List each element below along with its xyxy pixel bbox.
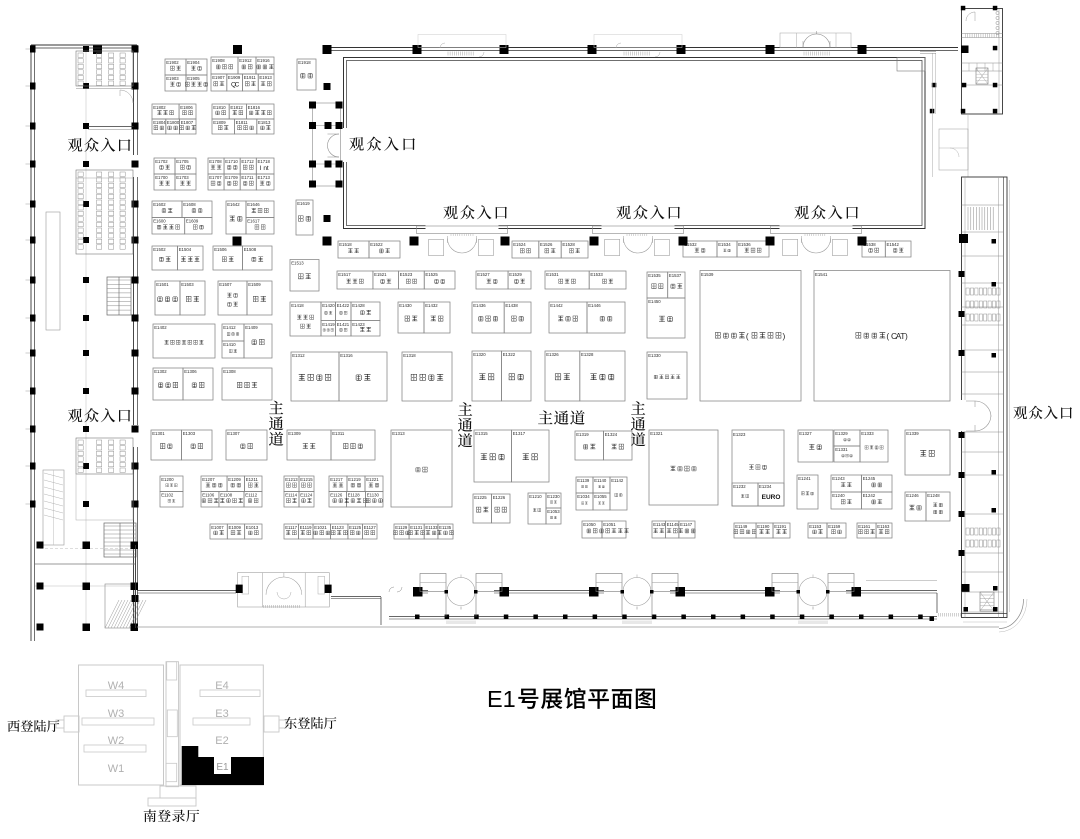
svg-text:E1149: E1149 [735, 524, 748, 529]
svg-text:E1525: E1525 [425, 272, 438, 277]
svg-text:E1813: E1813 [258, 120, 271, 125]
svg-text:E1217: E1217 [330, 477, 343, 482]
svg-text:E1225: E1225 [474, 495, 487, 500]
svg-text:E4: E4 [215, 680, 228, 692]
svg-text:E1324: E1324 [605, 432, 618, 437]
svg-text:E1646: E1646 [247, 202, 260, 207]
svg-text:E1534: E1534 [718, 242, 731, 247]
svg-text:E1147: E1147 [680, 522, 693, 527]
svg-text:E1501: E1501 [156, 282, 169, 287]
svg-text:E1119: E1119 [300, 525, 312, 530]
svg-text:E1319: E1319 [576, 432, 589, 437]
svg-text:E1713: E1713 [258, 175, 271, 180]
svg-text:E1124: E1124 [300, 493, 313, 498]
svg-text:E1133: E1133 [425, 525, 438, 530]
svg-text:E1537: E1537 [669, 273, 682, 278]
svg-text:E1135: E1135 [439, 525, 452, 530]
svg-text:E1600: E1600 [153, 219, 166, 224]
svg-text:E1328: E1328 [581, 352, 594, 357]
svg-text:E1140: E1140 [594, 478, 607, 483]
svg-text:E1126: E1126 [330, 493, 343, 498]
svg-text:E1053: E1053 [547, 509, 560, 514]
svg-text:E1303: E1303 [183, 431, 196, 436]
svg-text:E1051: E1051 [603, 522, 616, 527]
svg-text:E1242: E1242 [863, 493, 876, 498]
svg-text:E1326: E1326 [546, 352, 559, 357]
svg-text:E1506: E1506 [214, 247, 227, 252]
svg-text:E1410: E1410 [223, 342, 236, 347]
svg-text:E1246: E1246 [906, 493, 919, 498]
svg-text:E1129: E1129 [395, 525, 408, 530]
svg-text:E1200: E1200 [161, 477, 174, 482]
svg-text:E1508: E1508 [244, 247, 257, 252]
svg-text:(: ( [746, 331, 749, 341]
svg-text:E1535: E1535 [648, 273, 661, 278]
svg-text:E1211: E1211 [246, 477, 259, 482]
svg-text:E1331: E1331 [835, 447, 848, 452]
svg-text:E1139: E1139 [577, 478, 590, 483]
svg-text:E1114: E1114 [285, 493, 297, 498]
svg-text:E1526: E1526 [540, 242, 553, 247]
svg-text:E1909: E1909 [228, 75, 241, 80]
svg-text:C: C [235, 82, 240, 89]
svg-text:E1907: E1907 [212, 75, 225, 80]
svg-text:E1807: E1807 [181, 120, 194, 125]
svg-text:E1529: E1529 [509, 272, 522, 277]
svg-text:E1502: E1502 [153, 247, 166, 252]
svg-text:E1802: E1802 [153, 105, 166, 110]
svg-text:E1513: E1513 [291, 261, 304, 266]
svg-text:E1034: E1034 [577, 494, 590, 499]
svg-text:E1320: E1320 [473, 352, 486, 357]
svg-text:E1522: E1522 [370, 242, 383, 247]
svg-text:E1521: E1521 [374, 272, 387, 277]
svg-text:E1240: E1240 [832, 493, 845, 498]
svg-text:E1318: E1318 [403, 353, 416, 358]
svg-text:E1316: E1316 [340, 353, 353, 358]
svg-text:E1309: E1309 [288, 431, 301, 436]
svg-text:E1409: E1409 [245, 325, 258, 330]
svg-text:E1333: E1333 [861, 431, 874, 436]
svg-text:E1912: E1912 [239, 58, 252, 63]
svg-text:E1430: E1430 [399, 303, 412, 308]
svg-text:E1243: E1243 [832, 476, 845, 481]
svg-text:E1245: E1245 [863, 476, 876, 481]
svg-text:E1: E1 [216, 762, 229, 773]
svg-text:W1: W1 [108, 763, 125, 775]
svg-text:E1446: E1446 [588, 303, 601, 308]
svg-text:E1219: E1219 [348, 477, 361, 482]
svg-text:E1009: E1009 [229, 525, 242, 530]
svg-text:E1308: E1308 [223, 369, 236, 374]
svg-text:E1311: E1311 [332, 431, 345, 436]
svg-text:E1811: E1811 [236, 120, 249, 125]
svg-text:): ) [905, 331, 908, 341]
svg-text:E1428: E1428 [352, 303, 365, 308]
svg-text:E1142: E1142 [611, 478, 624, 483]
svg-text:E1307: E1307 [227, 431, 240, 436]
svg-text:E1816: E1816 [248, 105, 261, 110]
svg-text:E1108: E1108 [220, 493, 233, 498]
svg-text:E1210: E1210 [529, 494, 542, 499]
svg-text:E1301: E1301 [152, 431, 165, 436]
svg-text:E1707: E1707 [209, 175, 222, 180]
svg-text:E1: E1 [487, 686, 516, 712]
svg-text:E1442: E1442 [550, 303, 563, 308]
svg-text:E1812: E1812 [230, 105, 243, 110]
svg-text:E1021: E1021 [314, 525, 327, 530]
svg-text:E1112: E1112 [245, 493, 257, 498]
svg-text:E1528: E1528 [562, 242, 575, 247]
svg-text:E1918: E1918 [298, 60, 311, 65]
svg-text:E1117: E1117 [285, 525, 297, 530]
svg-text:E1905: E1905 [187, 76, 200, 81]
svg-text:E1904: E1904 [187, 60, 200, 65]
svg-text:E1313: E1313 [392, 431, 405, 436]
svg-text:E1810: E1810 [213, 105, 226, 110]
svg-text:E1902: E1902 [166, 60, 179, 65]
svg-text:E1050: E1050 [583, 522, 596, 527]
svg-text:E1207: E1207 [202, 477, 215, 482]
svg-text:E1128: E1128 [348, 493, 361, 498]
svg-text:E1102: E1102 [161, 493, 174, 498]
svg-text:E1420: E1420 [322, 303, 335, 308]
svg-text:E1438: E1438 [505, 303, 518, 308]
svg-text:E1541: E1541 [815, 272, 828, 277]
svg-text:E1503: E1503 [181, 282, 194, 287]
svg-text:E1531: E1531 [546, 272, 559, 277]
svg-text:E1619: E1619 [297, 201, 310, 206]
svg-text:E1191: E1191 [774, 524, 787, 529]
svg-text:E1806: E1806 [180, 105, 193, 110]
svg-text:E1125: E1125 [349, 525, 362, 530]
svg-text:E1536: E1536 [738, 242, 751, 247]
svg-text:E1234: E1234 [759, 484, 772, 489]
svg-text:E1705: E1705 [176, 159, 189, 164]
svg-text:E1418: E1418 [291, 303, 304, 308]
svg-text:E1327: E1327 [799, 431, 812, 436]
svg-text:E1302: E1302 [154, 369, 167, 374]
svg-text:E1908: E1908 [212, 58, 225, 63]
svg-text:I: I [260, 165, 262, 172]
svg-text:E1703: E1703 [176, 175, 189, 180]
svg-text:E1323: E1323 [733, 432, 746, 437]
svg-text:E1321: E1321 [650, 431, 663, 436]
svg-text:E1230: E1230 [547, 494, 560, 499]
svg-text:E1542: E1542 [887, 242, 900, 247]
svg-text:E1709: E1709 [225, 175, 238, 180]
svg-text:E1710: E1710 [225, 159, 238, 164]
svg-text:E1507: E1507 [219, 282, 232, 287]
svg-text:E1700: E1700 [155, 175, 168, 180]
svg-text:E1306: E1306 [184, 369, 197, 374]
svg-text:E1221: E1221 [366, 477, 379, 482]
svg-text:E1153: E1153 [809, 524, 822, 529]
svg-text:E1213: E1213 [285, 477, 298, 482]
svg-text:EURO: EURO [762, 494, 781, 501]
svg-text:E1602: E1602 [153, 202, 166, 207]
svg-text:E1055: E1055 [594, 494, 607, 499]
svg-text:E1809: E1809 [213, 120, 226, 125]
svg-text:E1241: E1241 [798, 476, 811, 481]
svg-text:E1322: E1322 [503, 352, 516, 357]
svg-text:E1423: E1423 [352, 322, 365, 327]
svg-text:E1123: E1123 [332, 525, 345, 530]
svg-text:E1718: E1718 [258, 159, 271, 164]
svg-text:E1432: E1432 [425, 303, 438, 308]
svg-text:E1450: E1450 [648, 299, 661, 304]
svg-text:E1312: E1312 [292, 353, 305, 358]
svg-text:E1523: E1523 [400, 272, 413, 277]
svg-text:E1190: E1190 [757, 524, 770, 529]
svg-text:E1712: E1712 [241, 159, 254, 164]
svg-text:E1131: E1131 [410, 525, 423, 530]
svg-text:E1708: E1708 [209, 159, 222, 164]
svg-text:E1422: E1422 [337, 303, 350, 308]
svg-text:E1608: E1608 [183, 202, 196, 207]
svg-text:E1533: E1533 [590, 272, 603, 277]
svg-text:E1702: E1702 [155, 159, 168, 164]
svg-text:E1143: E1143 [653, 522, 666, 527]
svg-text:W4: W4 [108, 680, 125, 692]
svg-text:E1226: E1226 [493, 495, 506, 500]
svg-text:E1711: E1711 [241, 175, 254, 180]
svg-text:E1518: E1518 [339, 242, 352, 247]
svg-text:E3: E3 [215, 708, 228, 720]
svg-text:E1232: E1232 [733, 484, 746, 489]
svg-text:E2: E2 [215, 735, 228, 747]
svg-text:E1617: E1617 [247, 219, 260, 224]
svg-text:E1209: E1209 [228, 477, 241, 482]
svg-text:t: t [267, 165, 269, 172]
svg-text:E1527: E1527 [477, 272, 490, 277]
svg-text:E1161: E1161 [858, 524, 871, 529]
svg-text:W3: W3 [108, 708, 125, 720]
svg-text:W2: W2 [108, 735, 125, 747]
svg-text:E1215: E1215 [300, 477, 313, 482]
svg-text:E1145: E1145 [667, 522, 680, 527]
svg-text:E1517: E1517 [338, 272, 351, 277]
svg-text:E1916: E1916 [257, 58, 270, 63]
svg-text:E1524: E1524 [513, 242, 526, 247]
svg-text:E1248: E1248 [927, 493, 940, 498]
svg-text:E1539: E1539 [701, 272, 714, 277]
svg-text:E1804: E1804 [153, 120, 166, 125]
svg-text:E1339: E1339 [906, 431, 919, 436]
svg-text:): ) [783, 331, 786, 341]
svg-text:E1317: E1317 [513, 431, 526, 436]
svg-text:E1106: E1106 [202, 493, 215, 498]
svg-text:E1911: E1911 [244, 75, 257, 80]
svg-text:E1419: E1419 [322, 322, 335, 327]
svg-text:E1421: E1421 [337, 322, 350, 327]
svg-text:E1609: E1609 [186, 219, 199, 224]
svg-text:E1130: E1130 [367, 493, 380, 498]
svg-text:(: ( [886, 331, 889, 341]
svg-text:E1315: E1315 [475, 431, 488, 436]
svg-text:E1412: E1412 [223, 325, 236, 330]
svg-text:E1007: E1007 [211, 525, 224, 530]
svg-text:E1402: E1402 [154, 325, 167, 330]
svg-text:E1436: E1436 [473, 303, 486, 308]
svg-text:E1504: E1504 [179, 247, 192, 252]
svg-text:E1913: E1913 [259, 75, 272, 80]
svg-text:E1013: E1013 [246, 525, 259, 530]
svg-text:E1127: E1127 [364, 525, 377, 530]
svg-text:E1163: E1163 [877, 524, 890, 529]
svg-text:E1800: E1800 [167, 120, 180, 125]
svg-text:E1642: E1642 [227, 202, 240, 207]
svg-text:E1509: E1509 [248, 282, 261, 287]
svg-text:E1159: E1159 [828, 524, 841, 529]
svg-text:E1329: E1329 [835, 431, 848, 436]
svg-text:E1330: E1330 [648, 353, 661, 358]
svg-text:E1903: E1903 [166, 76, 179, 81]
